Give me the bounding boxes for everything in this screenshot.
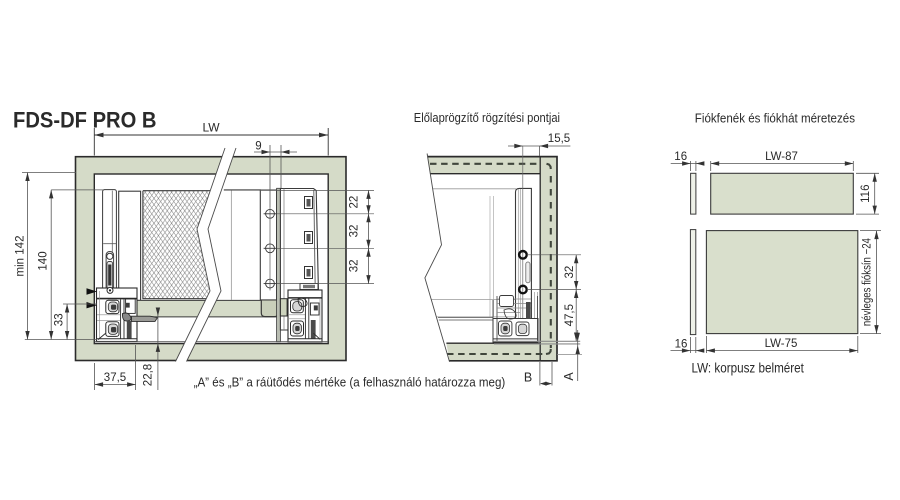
svg-text:16: 16 xyxy=(674,151,687,163)
svg-text:33: 33 xyxy=(54,313,66,326)
svg-text:15,5: 15,5 xyxy=(548,133,570,145)
svg-text:B: B xyxy=(524,371,532,385)
svg-text:Előlaprögzítő rögzítési pontja: Előlaprögzítő rögzítési pontjai xyxy=(414,110,560,125)
svg-text:22,8: 22,8 xyxy=(143,364,155,386)
svg-text:LW-87: LW-87 xyxy=(765,151,798,163)
svg-text:140: 140 xyxy=(38,251,50,270)
svg-text:Fiókfenék és fiókhát méretezés: Fiókfenék és fiókhát méretezés xyxy=(695,111,855,126)
svg-text:LW: korpusz belméret: LW: korpusz belméret xyxy=(692,361,805,376)
svg-text:32: 32 xyxy=(564,266,576,279)
svg-text:32: 32 xyxy=(349,225,361,238)
svg-text:LW: LW xyxy=(202,121,220,135)
svg-text:A: A xyxy=(562,372,576,381)
svg-text:névleges fióksín −24: névleges fióksín −24 xyxy=(862,238,874,327)
svg-text:47,5: 47,5 xyxy=(564,304,576,326)
svg-text:22: 22 xyxy=(349,196,361,209)
svg-text:FDS-DF PRO B: FDS-DF PRO B xyxy=(13,108,157,133)
svg-text:min 142: min 142 xyxy=(15,236,27,277)
svg-text:32: 32 xyxy=(349,260,361,273)
svg-text:9: 9 xyxy=(255,141,261,153)
svg-text:116: 116 xyxy=(860,185,872,203)
svg-text:„A” és „B” a ráütődés mértéke: „A” és „B” a ráütődés mértéke (a felhasz… xyxy=(194,375,506,390)
svg-text:16: 16 xyxy=(675,339,688,351)
svg-text:37,5: 37,5 xyxy=(104,372,126,384)
svg-text:LW-75: LW-75 xyxy=(765,338,798,350)
